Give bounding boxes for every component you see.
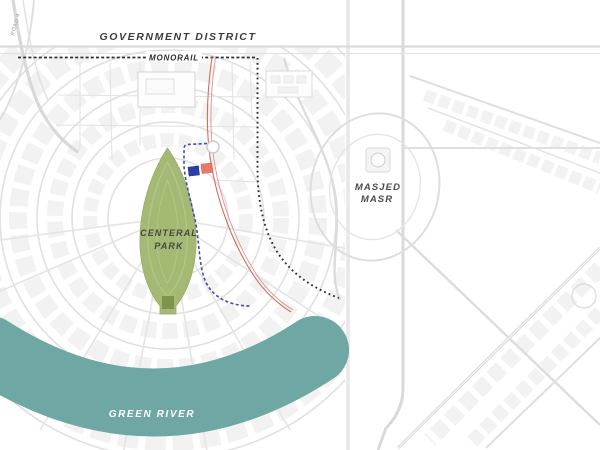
government-plaza bbox=[138, 72, 195, 107]
green-river-band bbox=[0, 350, 315, 403]
roundabout bbox=[207, 141, 219, 153]
park-stem-block bbox=[162, 296, 174, 309]
masjed-masr-label-line1: MASJED bbox=[355, 182, 401, 193]
mosque-dome bbox=[371, 153, 385, 167]
mask-right bbox=[345, 0, 600, 450]
city-masterplan-map: CENTERAL PARK GREEN RIVER MONORAIL GOVER… bbox=[0, 0, 600, 450]
central-park-label-line2: PARK bbox=[154, 241, 184, 251]
masjed-masr-label-line2: MASR bbox=[361, 194, 393, 205]
green-river-label: GREEN RIVER bbox=[109, 409, 196, 420]
plot-marker-blue bbox=[188, 166, 200, 176]
east-plaza bbox=[266, 71, 312, 97]
central-park-label-line1: CENTERAL bbox=[140, 228, 198, 238]
plot-marker-salmon bbox=[201, 163, 213, 174]
monorail-label: MONORAIL bbox=[149, 54, 199, 63]
government-district-label: GOVERNMENT DISTRICT bbox=[100, 31, 257, 43]
map-canvas: CENTERAL PARK GREEN RIVER MONORAIL GOVER… bbox=[0, 0, 600, 450]
